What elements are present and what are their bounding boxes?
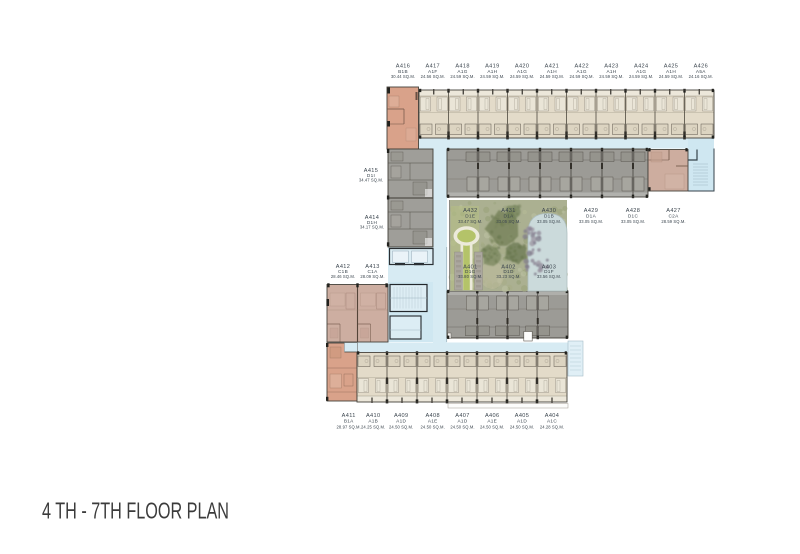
svg-text:33.23 SQ.M.: 33.23 SQ.M. [496,274,520,279]
svg-text:24.59 SQ.M.: 24.59 SQ.M. [450,74,474,79]
svg-text:D1E: D1E [465,213,475,218]
svg-text:24.59 SQ.M.: 24.59 SQ.M. [510,74,534,79]
svg-text:A1D: A1D [517,419,527,424]
svg-text:D1A: D1A [503,213,514,218]
svg-text:D1A: D1A [586,213,597,218]
svg-text:A1D: A1D [396,419,406,424]
svg-text:33.56 SQ.M.: 33.56 SQ.M. [537,274,561,279]
svg-text:A1E: A1E [428,419,438,424]
svg-text:28.97 SQ.M.: 28.97 SQ.M. [337,425,361,430]
svg-text:24.59 SQ.M.: 24.59 SQ.M. [540,74,564,79]
svg-text:A1C: A1C [547,419,557,424]
svg-text:A1D: A1D [457,419,467,424]
svg-text:24.59 SQ.M.: 24.59 SQ.M. [599,74,623,79]
svg-text:24.50 SQ.M.: 24.50 SQ.M. [450,425,474,430]
svg-text:30.44 SQ.M.: 30.44 SQ.M. [391,74,415,79]
svg-text:D1B: D1B [544,213,554,218]
svg-text:A1E: A1E [487,419,497,424]
svg-text:28.59 SQ.M.: 28.59 SQ.M. [661,219,685,224]
svg-text:28.09 SQ.M.: 28.09 SQ.M. [360,274,384,279]
svg-text:24.50 SQ.M.: 24.50 SQ.M. [389,425,413,430]
svg-text:33.47 SQ.M.: 33.47 SQ.M. [458,219,482,224]
svg-text:24.59 SQ.M.: 24.59 SQ.M. [629,74,653,79]
svg-text:33.05 SQ.M.: 33.05 SQ.M. [621,219,645,224]
svg-text:C2A: C2A [668,213,679,218]
svg-text:D1C: D1C [628,213,639,218]
svg-text:33.80 SQ.M.: 33.80 SQ.M. [458,274,482,279]
svg-text:24.50 SQ.M.: 24.50 SQ.M. [510,425,534,430]
svg-text:24.16 SQ.M.: 24.16 SQ.M. [689,74,713,79]
svg-text:34.47 SQ.M.: 34.47 SQ.M. [359,178,383,183]
svg-text:24.50 SQ.M.: 24.50 SQ.M. [421,425,445,430]
svg-text:33.05 SQ.M.: 33.05 SQ.M. [496,219,520,224]
svg-text:24.28 SQ.M.: 24.28 SQ.M. [540,425,564,430]
svg-text:24.59 SQ.M.: 24.59 SQ.M. [659,74,683,79]
svg-text:24.56 SQ.M.: 24.56 SQ.M. [421,74,445,79]
svg-text:33.05 SQ.M.: 33.05 SQ.M. [537,219,561,224]
svg-text:B1A: B1A [344,419,354,424]
svg-text:A1B: A1B [368,419,378,424]
svg-text:33.05 SQ.M.: 33.05 SQ.M. [579,219,603,224]
svg-text:28.46 SQ.M.: 28.46 SQ.M. [331,274,355,279]
svg-text:24.59 SQ.M.: 24.59 SQ.M. [480,74,504,79]
svg-text:4 TH - 7TH FLOOR PLAN: 4 TH - 7TH FLOOR PLAN [42,498,229,524]
svg-text:34.17 SQ.M.: 34.17 SQ.M. [360,225,384,230]
svg-text:24.25 SQ.M.: 24.25 SQ.M. [361,425,385,430]
svg-text:24.59 SQ.M.: 24.59 SQ.M. [570,74,594,79]
svg-text:24.50 SQ.M.: 24.50 SQ.M. [480,425,504,430]
